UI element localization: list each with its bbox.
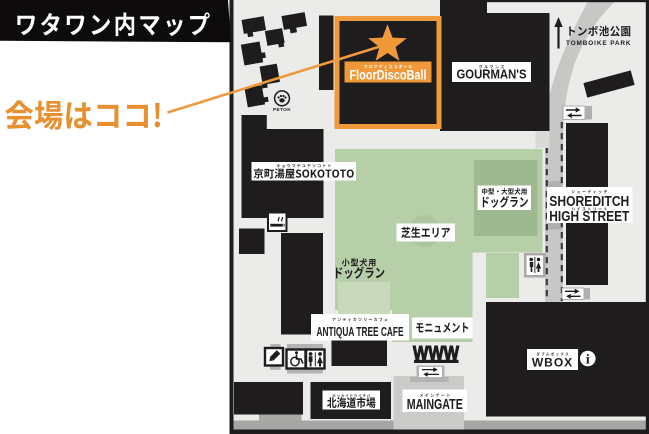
svg-text:SHOREDITCH: SHOREDITCH bbox=[549, 194, 629, 210]
svg-text:WBOX: WBOX bbox=[532, 355, 573, 369]
svg-text:PETOK: PETOK bbox=[273, 107, 291, 113]
svg-text:HIGH STREET: HIGH STREET bbox=[549, 209, 629, 225]
svg-text:ANTIQUA TREE CAFE: ANTIQUA TREE CAFE bbox=[317, 325, 404, 339]
svg-text:i: i bbox=[586, 352, 590, 367]
svg-text:TOMBOIKE PARK: TOMBOIKE PARK bbox=[566, 40, 631, 47]
svg-text:FloorDiscoBall: FloorDiscoBall bbox=[350, 68, 427, 83]
svg-text:GOURMAN'S: GOURMAN'S bbox=[457, 68, 527, 82]
svg-text:MAINGATE: MAINGATE bbox=[407, 396, 463, 413]
